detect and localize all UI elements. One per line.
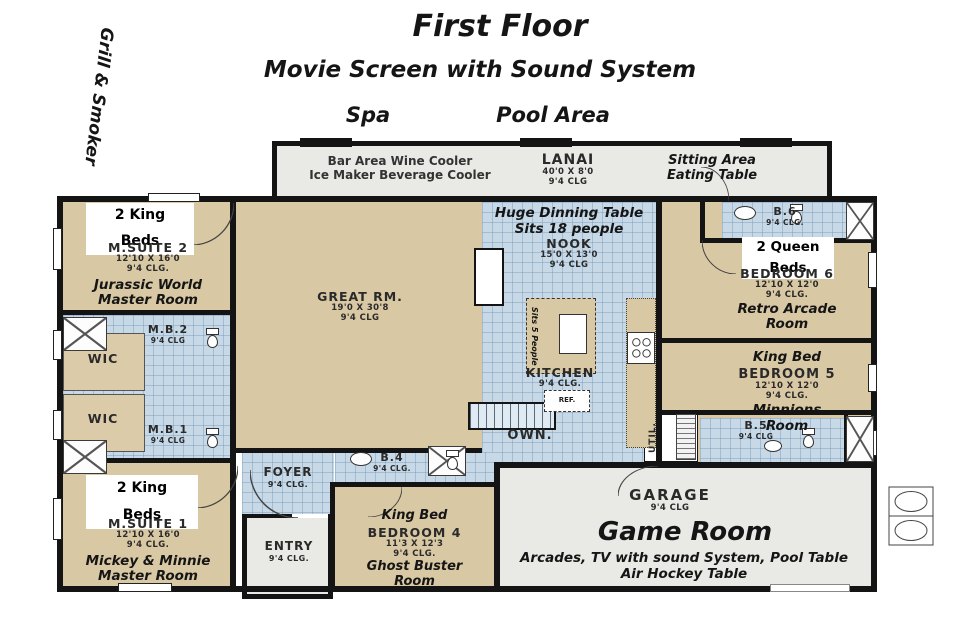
wall (330, 482, 500, 487)
window-icon (148, 193, 200, 202)
wall (827, 141, 832, 201)
stairs (468, 402, 556, 430)
screen-post (300, 138, 352, 147)
wall (242, 594, 333, 599)
b5-label: B.5 9'4 CLG (716, 420, 796, 441)
closet-x-icon (846, 202, 874, 240)
wall (494, 462, 874, 468)
mb2-label: M.B.2 9'4 CLG (118, 324, 218, 345)
garage-door-opening (770, 584, 850, 592)
screen-post (740, 138, 792, 147)
washer-dryer-icon (676, 414, 696, 460)
window-icon (53, 330, 62, 360)
door-arc-icon (196, 466, 238, 508)
stairs-label: OWN. (498, 429, 562, 444)
toilet-icon (446, 450, 459, 469)
wall (272, 141, 277, 201)
pool-equipment-pad-icon (888, 486, 934, 546)
label-pool-area: Pool Area (458, 103, 648, 127)
window-icon (53, 410, 62, 440)
util-label: UTIL. (648, 416, 658, 460)
lanai-bar-note: Bar Area Wine Cooler Ice Maker Beverage … (285, 155, 515, 183)
label-grill-smoker: Grill & Smoker (78, 15, 117, 176)
nook-label: Huge Dinning Table Sits 18 people NOOK 1… (480, 206, 658, 271)
b4-label: B.4 9'4 CLG. (352, 452, 432, 473)
foyer-label: FOYER 9'4 CLG. (244, 466, 332, 489)
label-spa: Spa (318, 103, 418, 127)
game-room-note: Arcades, TV with sound System, Pool Tabl… (492, 551, 876, 582)
window-icon (53, 228, 62, 270)
wall (57, 310, 233, 315)
sink-icon (764, 440, 782, 452)
window-icon (53, 498, 62, 540)
kitchen-label: KITCHEN 9'4 CLG. (498, 366, 622, 390)
garage-label: GARAGE 9'4 CLG (560, 487, 780, 514)
sitting-area-note: Sitting Area Eating Table (632, 154, 792, 184)
wall (658, 338, 874, 343)
bedroom4-label: King Bed BEDROOM 4 11'3 X 12'3 9'4 CLG. … (335, 509, 494, 590)
wic-top-label: WIC (66, 352, 140, 366)
great-room-label: GREAT RM. 19'0 X 30'8 9'4 CLG (250, 290, 470, 324)
closet-x-icon (63, 440, 107, 474)
door-arc-icon (192, 203, 234, 245)
island-sink (559, 314, 587, 354)
mb1-label: M.B.1 9'4 CLG (118, 424, 218, 445)
room-great-room (236, 202, 482, 448)
b6-label: B.6 9'4 CLG. (745, 206, 825, 227)
entry-label: ENTRY 9'4 CLG. (245, 540, 333, 563)
wall (700, 196, 705, 242)
msuite2-label: M.SUITE 2 12'10 X 16'0 9'4 CLG. Jurassic… (62, 241, 234, 309)
lanai-label: LANAI 40'0 X 8'0 9'4 CLG (523, 152, 613, 188)
screen-post (520, 138, 572, 147)
msuite1-label: M.SUITE 1 12'10 X 16'0 9'4 CLG. Mickey &… (62, 517, 234, 585)
cooktop-icon (627, 332, 655, 364)
bedroom6-label: BEDROOM 6 12'10 X 12'0 9'4 CLG. Retro Ar… (700, 267, 874, 333)
island-seating-note: Sits 5 People (530, 303, 539, 369)
subtitle-movie-screen: Movie Screen with Sound System (150, 57, 810, 83)
floor-plan: First Floor Movie Screen with Sound Syst… (0, 0, 960, 640)
game-room-label: Game Room (540, 518, 830, 548)
fridge-label: REF. (544, 396, 590, 404)
closet-x-icon (63, 317, 107, 351)
page-title: First Floor (300, 10, 700, 45)
